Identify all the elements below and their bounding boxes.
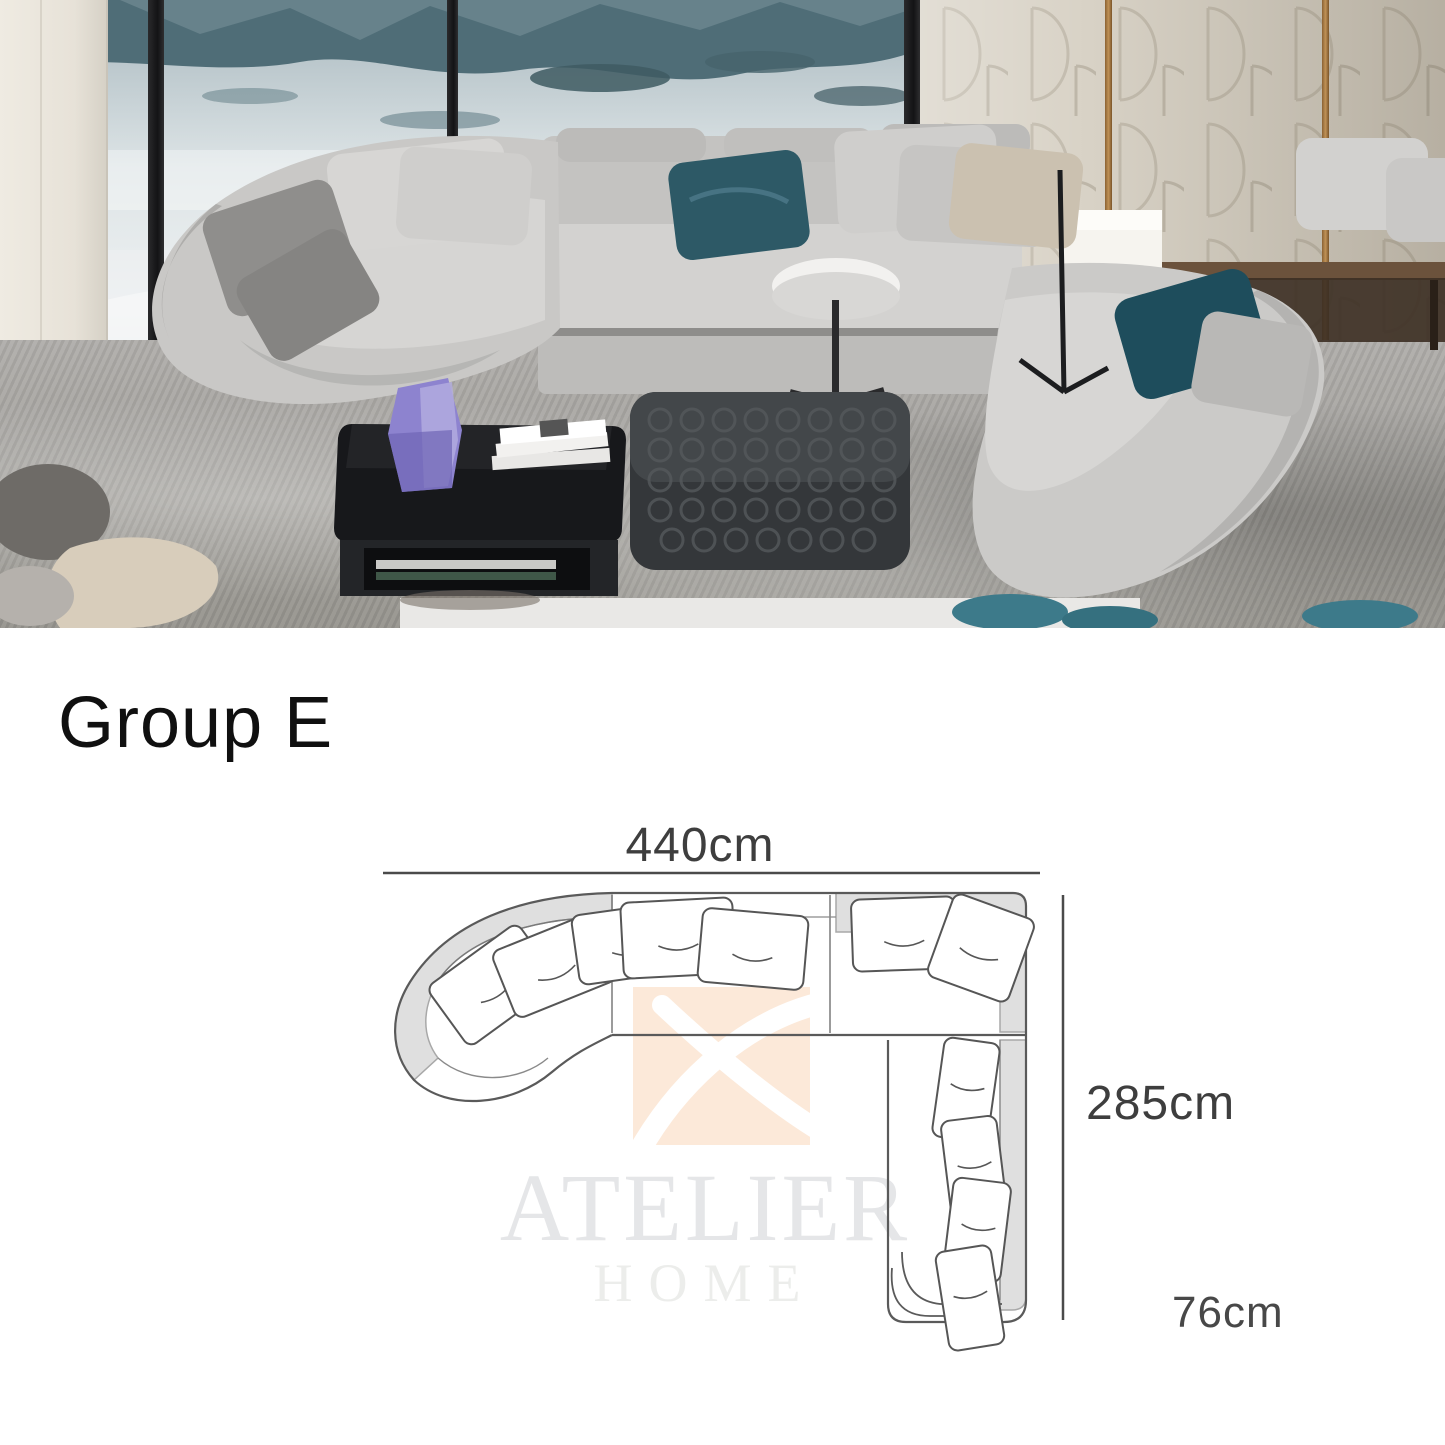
pillow-beige (947, 142, 1084, 251)
floor-cushions (0, 464, 218, 628)
product-photo (0, 0, 1445, 628)
group-title: Group E (58, 682, 333, 764)
sectional-sofa-scene (0, 0, 1445, 628)
floorplan-pillows (426, 892, 1037, 1352)
pillow-gray-pair-left (325, 137, 533, 253)
product-listing-image: ATELIER HOME Group E 440cm 285cm 76cm (0, 0, 1445, 1445)
slippers (952, 594, 1418, 628)
floorplan-diagram (370, 815, 1080, 1355)
pillow-teal-middle (667, 148, 812, 262)
length-dimension-label: 285cm (1086, 1076, 1235, 1131)
crystal-object (388, 378, 462, 492)
depth-dimension-label: 76cm (1172, 1288, 1284, 1338)
